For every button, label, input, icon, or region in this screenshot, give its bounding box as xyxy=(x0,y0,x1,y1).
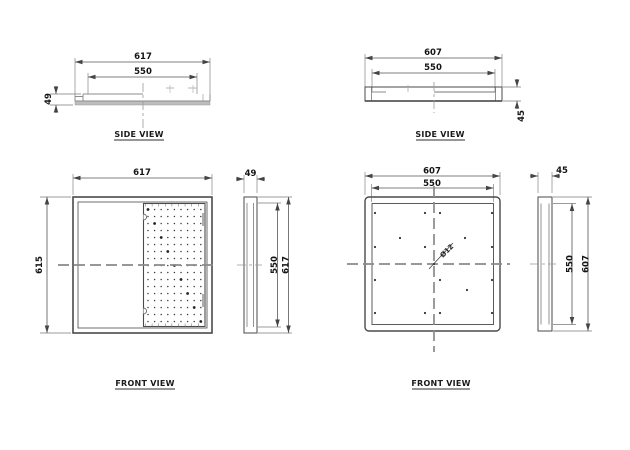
front-view-a-profile xyxy=(236,175,292,333)
side-view-b-title: SIDE VIEW xyxy=(415,130,464,139)
front-view-a-profile-outer-height-label: 617 xyxy=(282,256,292,274)
front-view-b-profile-width-label: 45 xyxy=(556,166,568,176)
hole xyxy=(374,312,376,314)
side-view-a-outer-width-label: 617 xyxy=(134,52,152,62)
front-view-b-title: FRONT VIEW xyxy=(411,379,470,388)
side-view-b-height-label: 45 xyxy=(517,110,527,122)
front-view-b: 607 550 Ø12 45 55 xyxy=(347,166,592,389)
hole xyxy=(424,246,426,248)
hole xyxy=(374,279,376,281)
hole xyxy=(374,212,376,214)
hole xyxy=(491,279,493,281)
front-view-a-height-label: 615 xyxy=(35,256,45,274)
hole xyxy=(424,312,426,314)
lid-finger-notch-top xyxy=(144,214,147,220)
side-view-b-inner-width-label: 550 xyxy=(424,63,442,73)
hole xyxy=(439,312,441,314)
hole xyxy=(374,246,376,248)
side-view-a: 617 550 49 SIDE VIEW xyxy=(44,52,210,140)
front-view-b-profile-inner-height-label: 550 xyxy=(566,255,576,273)
side-view-a-height-label: 49 xyxy=(44,93,54,105)
front-view-b-profile-outer-height-label: 607 xyxy=(582,255,592,273)
illegible-micro-label-bottom xyxy=(202,294,204,307)
hole xyxy=(491,212,493,214)
hole xyxy=(439,212,441,214)
side-view-a-geometry xyxy=(75,83,210,130)
hole xyxy=(491,246,493,248)
side-view-a-inner-width-label: 550 xyxy=(134,67,152,77)
hole xyxy=(399,237,401,239)
side-view-b: 607 550 45 SIDE VIEW xyxy=(365,48,527,140)
hole xyxy=(439,279,441,281)
technical-drawing-canvas: 617 550 49 SIDE VIEW xyxy=(0,0,630,450)
hole xyxy=(466,289,468,291)
hole xyxy=(424,212,426,214)
front-view-a-profile-width-label: 49 xyxy=(245,169,257,179)
hole xyxy=(464,237,466,239)
hole xyxy=(491,312,493,314)
lid-finger-notch-bottom xyxy=(144,308,147,314)
front-view-a-geometry xyxy=(58,197,217,333)
hole-callout-label: Ø12 xyxy=(439,243,456,260)
front-view-a-dimension-lines xyxy=(40,174,212,333)
side-view-b-outer-width-label: 607 xyxy=(424,48,442,58)
tray-base-strip xyxy=(75,101,210,105)
illegible-micro-label-top xyxy=(202,213,204,226)
front-view-b-geometry xyxy=(347,186,510,352)
front-view-a-profile-inner-height-label: 550 xyxy=(270,256,280,274)
front-view-a: 617 615 xyxy=(35,168,292,389)
side-view-a-title: SIDE VIEW xyxy=(114,130,163,139)
front-view-a-title: FRONT VIEW xyxy=(115,379,174,388)
front-view-b-inner-width-label: 550 xyxy=(423,179,441,189)
side-view-b-geometry xyxy=(365,82,502,113)
front-view-b-outer-width-label: 607 xyxy=(423,167,441,177)
front-view-b-profile xyxy=(530,172,592,331)
front-view-a-width-label: 617 xyxy=(133,168,151,178)
